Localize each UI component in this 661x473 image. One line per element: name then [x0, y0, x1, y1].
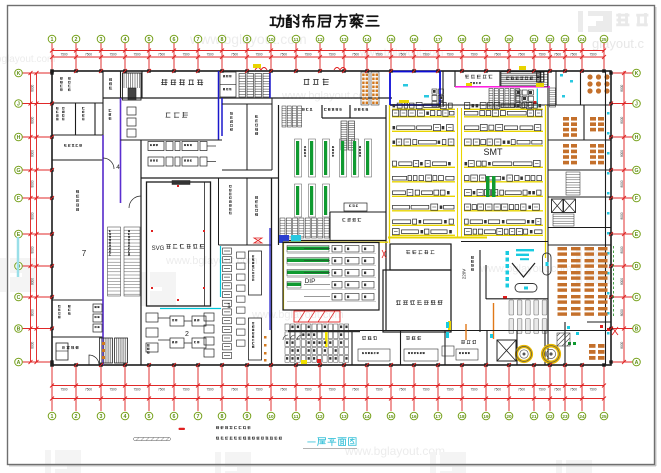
- svg-text:7: 7: [82, 249, 87, 258]
- svg-text:8000: 8000: [31, 150, 35, 157]
- svg-text:7500: 7500: [304, 387, 311, 391]
- svg-text:8: 8: [221, 414, 224, 420]
- svg-text:23: 23: [562, 414, 568, 419]
- svg-text:7500: 7500: [422, 387, 429, 391]
- svg-text:7: 7: [197, 414, 200, 420]
- svg-text:14: 14: [364, 37, 370, 42]
- svg-text:19: 19: [483, 37, 489, 42]
- svg-text:H: H: [17, 135, 21, 141]
- svg-text:SVG: SVG: [152, 246, 165, 252]
- svg-text:7500: 7500: [446, 387, 453, 391]
- svg-text:D: D: [635, 264, 639, 270]
- svg-text:15: 15: [388, 37, 394, 42]
- svg-text:K: K: [17, 71, 21, 77]
- svg-text:H: H: [635, 135, 639, 141]
- svg-text:7500: 7500: [182, 387, 189, 391]
- svg-text:8000: 8000: [31, 246, 35, 253]
- svg-text:3: 3: [100, 414, 103, 420]
- svg-text:220V: 220V: [462, 269, 467, 280]
- svg-text:7500: 7500: [85, 53, 92, 57]
- svg-text:15: 15: [388, 414, 394, 419]
- svg-text:7500: 7500: [375, 53, 382, 57]
- svg-text:16: 16: [411, 414, 417, 419]
- svg-text:A: A: [635, 360, 639, 366]
- svg-text:7500: 7500: [206, 53, 213, 57]
- svg-text:7500: 7500: [352, 53, 359, 57]
- svg-text:7500: 7500: [280, 53, 287, 57]
- svg-text:K: K: [635, 71, 639, 77]
- svg-text:8000: 8000: [620, 309, 624, 316]
- svg-text:7500: 7500: [255, 387, 262, 391]
- svg-text:F: F: [17, 196, 20, 202]
- svg-text:www.bglayout.com: www.bglayout.com: [281, 90, 374, 102]
- svg-text:1: 1: [51, 37, 54, 43]
- svg-text:23: 23: [562, 37, 568, 42]
- svg-text:E: E: [635, 232, 639, 238]
- svg-text:8000: 8000: [620, 212, 624, 219]
- svg-text:8000: 8000: [31, 341, 35, 348]
- svg-text:8000: 8000: [31, 278, 35, 285]
- svg-text:7500: 7500: [375, 387, 382, 391]
- svg-text:20: 20: [506, 414, 512, 419]
- svg-text:2: 2: [75, 37, 78, 43]
- svg-text:SMT: SMT: [484, 147, 504, 157]
- svg-text:7500: 7500: [470, 387, 477, 391]
- svg-text:G: G: [634, 168, 638, 174]
- svg-text:7500: 7500: [206, 387, 213, 391]
- svg-text:7500: 7500: [304, 53, 311, 57]
- svg-text:7500: 7500: [133, 387, 140, 391]
- svg-text:22: 22: [547, 37, 553, 42]
- svg-text:13: 13: [341, 37, 347, 42]
- svg-text:7500: 7500: [538, 53, 545, 57]
- svg-text:9: 9: [246, 37, 249, 43]
- svg-text:7500: 7500: [60, 387, 67, 391]
- svg-text:7500: 7500: [494, 53, 501, 57]
- svg-text:10: 10: [268, 414, 274, 419]
- svg-text:17: 17: [435, 414, 441, 419]
- svg-text:7500: 7500: [158, 387, 165, 391]
- svg-text:7500: 7500: [470, 53, 477, 57]
- svg-text:J: J: [635, 101, 638, 107]
- svg-text:7500: 7500: [328, 387, 335, 391]
- svg-text:14: 14: [364, 414, 370, 419]
- svg-text:7500: 7500: [182, 53, 189, 57]
- svg-text:8000: 8000: [31, 116, 35, 123]
- svg-text:12: 12: [317, 37, 323, 42]
- svg-text:7500: 7500: [446, 53, 453, 57]
- svg-text:5: 5: [148, 414, 151, 420]
- svg-text:8000: 8000: [620, 246, 624, 253]
- svg-text:19: 19: [483, 414, 489, 419]
- svg-text:C: C: [635, 295, 639, 301]
- svg-text:21: 21: [531, 37, 537, 42]
- svg-text:7500: 7500: [518, 387, 525, 391]
- svg-text:8000: 8000: [620, 116, 624, 123]
- svg-text:8000: 8000: [31, 84, 35, 91]
- svg-text:25: 25: [601, 37, 607, 42]
- svg-text:7500: 7500: [570, 53, 577, 57]
- svg-text:8000: 8000: [620, 84, 624, 91]
- svg-text:7500: 7500: [255, 53, 262, 57]
- svg-text:7500: 7500: [352, 387, 359, 391]
- svg-text:18: 18: [459, 414, 465, 419]
- svg-text:8: 8: [221, 37, 224, 43]
- svg-text:4: 4: [124, 37, 127, 43]
- svg-text:7500: 7500: [399, 387, 406, 391]
- svg-text:8000: 8000: [620, 341, 624, 348]
- svg-text:7500: 7500: [554, 387, 561, 391]
- svg-text:7500: 7500: [231, 53, 238, 57]
- svg-text:7: 7: [197, 37, 200, 43]
- svg-text:16: 16: [411, 37, 417, 42]
- svg-text:8000: 8000: [620, 180, 624, 187]
- svg-text:20: 20: [506, 37, 512, 42]
- svg-text:2: 2: [185, 331, 189, 338]
- svg-text:7500: 7500: [60, 53, 67, 57]
- svg-text:A: A: [17, 360, 21, 366]
- svg-text:2: 2: [75, 414, 78, 420]
- svg-text:G: G: [16, 168, 20, 174]
- svg-text:www.bglayout.com: www.bglayout.com: [165, 255, 258, 267]
- svg-text:7500: 7500: [158, 53, 165, 57]
- svg-text:F: F: [635, 196, 638, 202]
- svg-text:7500: 7500: [399, 53, 406, 57]
- svg-text:8000: 8000: [620, 278, 624, 285]
- svg-text:7500: 7500: [538, 387, 545, 391]
- svg-text:J: J: [17, 101, 20, 107]
- svg-text:8000: 8000: [31, 180, 35, 187]
- svg-text:6: 6: [173, 37, 176, 43]
- svg-text:1: 1: [51, 414, 54, 420]
- svg-text:7500: 7500: [518, 53, 525, 57]
- svg-text:7500: 7500: [570, 387, 577, 391]
- svg-text:7500: 7500: [554, 53, 561, 57]
- svg-text:7500: 7500: [231, 387, 238, 391]
- svg-text:24: 24: [579, 37, 585, 42]
- svg-text:www.bglayout.com: www.bglayout.com: [344, 444, 445, 458]
- svg-text:5: 5: [148, 37, 151, 43]
- svg-text:8000: 8000: [31, 212, 35, 219]
- svg-text:7500: 7500: [328, 53, 335, 57]
- svg-text:7500: 7500: [109, 53, 116, 57]
- svg-text:B: B: [17, 326, 21, 332]
- svg-text:12: 12: [317, 414, 323, 419]
- svg-text:11: 11: [294, 37, 299, 42]
- svg-text:13: 13: [341, 414, 347, 419]
- svg-text:4: 4: [116, 164, 120, 171]
- svg-text:1: 1: [227, 303, 231, 310]
- svg-text:25: 25: [601, 414, 607, 419]
- svg-text:7500: 7500: [422, 53, 429, 57]
- svg-text:8000: 8000: [620, 150, 624, 157]
- svg-text:C: C: [17, 295, 21, 301]
- svg-text:7500: 7500: [589, 53, 596, 57]
- svg-text:10: 10: [268, 37, 274, 42]
- svg-text:7500: 7500: [85, 387, 92, 391]
- svg-text:9: 9: [246, 414, 249, 420]
- svg-text:18: 18: [459, 37, 465, 42]
- svg-text:DIP: DIP: [305, 278, 316, 285]
- svg-text:www.bglayout.com: www.bglayout.com: [0, 54, 55, 65]
- svg-text:11: 11: [294, 414, 299, 419]
- svg-text:8000: 8000: [31, 309, 35, 316]
- svg-text:7500: 7500: [589, 387, 596, 391]
- svg-text:4: 4: [124, 414, 127, 420]
- svg-text:22: 22: [547, 414, 553, 419]
- svg-text:3: 3: [100, 37, 103, 43]
- svg-text:B: B: [635, 326, 639, 332]
- svg-text:7500: 7500: [494, 387, 501, 391]
- svg-text:7500: 7500: [280, 387, 287, 391]
- svg-text:17: 17: [435, 37, 441, 42]
- svg-text:7500: 7500: [133, 53, 140, 57]
- svg-text:21: 21: [531, 414, 537, 419]
- svg-text:7500: 7500: [109, 387, 116, 391]
- svg-text:6: 6: [173, 414, 176, 420]
- svg-text:24: 24: [579, 414, 585, 419]
